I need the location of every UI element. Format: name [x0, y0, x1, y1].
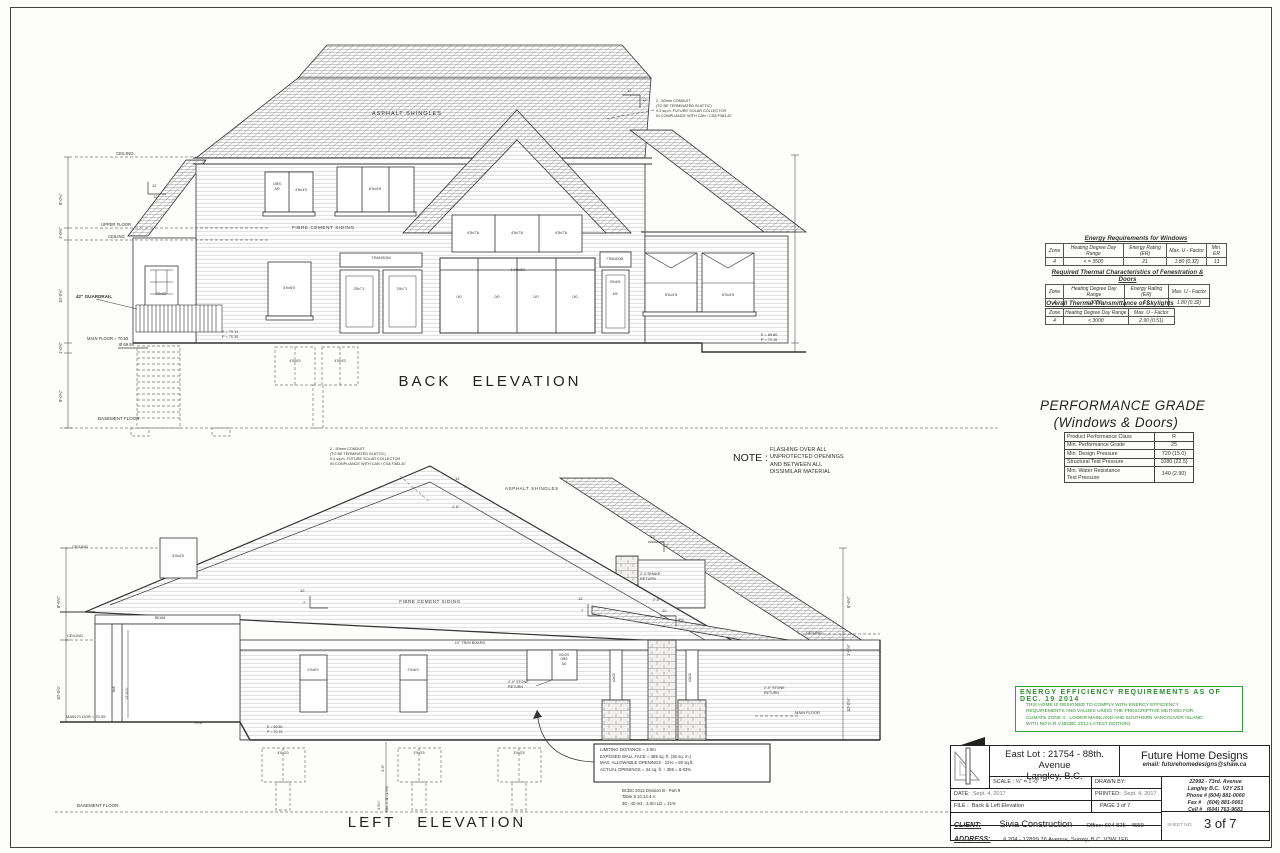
- column-header: Zone: [1046, 309, 1064, 317]
- address-label: ADDRESS:: [954, 836, 991, 843]
- energy-requirements-windows-table: Energy Requirements for Windows Zone Hea…: [1045, 235, 1227, 266]
- title-block: East Lot : 21754 - 88th. Avenue Langley,…: [950, 745, 1270, 841]
- table-title: Energy Requirements for Windows: [1045, 235, 1227, 242]
- drafting-triangle-logo: [951, 746, 987, 786]
- window-size-label: 4'5x7'6: [467, 230, 479, 235]
- table-cell: < = 3500: [1064, 258, 1124, 266]
- dim-label: 1'-6": [452, 505, 460, 510]
- energy-efficiency-title: ENERGY EFFICIENCY REQUIREMENTS AS OF DEC…: [1020, 689, 1238, 703]
- door-panel-label: 0/0: [457, 295, 462, 300]
- table-cell: 13: [1207, 258, 1227, 266]
- back-elevation-title: BACK ELEVATION: [399, 372, 582, 392]
- roof-pitch-label: 7: [464, 484, 466, 489]
- bcbc-code-note: BCBC 2012 Division B - Part 9 Table 9.10…: [622, 788, 680, 807]
- dim-label: 12'-6⅞": [125, 687, 130, 700]
- left-elevation-drawing: [55, 466, 950, 812]
- window-size-label: 3'9x3'5: [513, 751, 524, 756]
- table-cell: 4: [1046, 258, 1064, 266]
- roof-pitch-label: 12: [650, 534, 654, 539]
- column-header: Min. ER: [1207, 244, 1227, 258]
- window-size-label: 5'0x4'5: [665, 292, 677, 297]
- table-cell: < 3000: [1064, 317, 1129, 325]
- logo-cell: [951, 746, 989, 788]
- door-panel-label: 0/0: [495, 295, 500, 300]
- column-header: Zone: [1046, 285, 1064, 299]
- window-size-label: 3'0x2'0 OBS 3/0: [559, 653, 569, 666]
- window-size-label: 4'0x3'0: [277, 751, 288, 756]
- elevation-point: E = 69.80 P = 70.15: [267, 725, 283, 734]
- window-size-label: 3'0x5'0: [283, 285, 295, 290]
- table-cell: 25: [1155, 441, 1194, 450]
- column-header: Heating Degree Day Range: [1064, 244, 1124, 258]
- date-value: Sept. 4, 2017: [973, 791, 1006, 797]
- dim-label: 1'-0¾": [58, 342, 63, 354]
- project-address-cell: East Lot : 21754 - 88th. Avenue Langley,…: [989, 746, 1119, 776]
- file-value: Back & Left Elevation: [972, 803, 1024, 809]
- company-email: email: futurehomedesigns@shaw.ca: [1120, 762, 1269, 768]
- window-size-label: OBS 3/0: [273, 182, 281, 192]
- dim-label: Max. 4'-11" (1.5m): [385, 786, 389, 812]
- printed-label: PRINTED:: [1095, 791, 1121, 797]
- address-value: # 204 - 12899 76 Avenue, Surrey, B.C. V3…: [1003, 837, 1128, 843]
- dim-label: 8'-6¾": [56, 596, 61, 608]
- window-size-label: 2'0x6'0: [407, 668, 418, 673]
- roof-pitch-label: 12: [152, 183, 156, 188]
- dim-label: 1'-0¾": [58, 227, 63, 239]
- dim-label: 8'-0¼": [58, 193, 63, 205]
- left-elevation-title: LEFT ELEVATION: [348, 813, 527, 833]
- table-cell: 2.90 (0.51): [1128, 317, 1174, 325]
- table-cell: 1080 (22.5): [1155, 458, 1194, 467]
- table-cell: Min. Water Resistance Test Pressure: [1065, 467, 1155, 482]
- column-header: Heating Degree Day Range: [1064, 285, 1125, 299]
- scale-cell: SCALE : ¼" = 1'-0": [989, 776, 1091, 788]
- conduit-note: 2 - 50mm CONDUIT (TO BE TERMINATED IN AT…: [656, 99, 732, 119]
- project-line1: East Lot : 21754 - 88th. Avenue: [990, 749, 1119, 771]
- roof-pitch-label: 7: [581, 608, 583, 613]
- roof-pitch-label: 12: [578, 596, 582, 601]
- grade-elevation-mark: Ø 69.95: [119, 342, 134, 347]
- window-size-label: 4'5x7'6: [555, 230, 567, 235]
- window-size-label: 4'0x4'0: [172, 553, 184, 558]
- roof-pitch-label: 12: [153, 194, 157, 199]
- file-label: FILE :: [954, 803, 969, 809]
- column-header: Heating Degree Day Range: [1064, 309, 1129, 317]
- table-cell: 140 (2.90): [1155, 467, 1194, 482]
- door-size-label: 2'8x6'5: [156, 292, 167, 296]
- designer-address: 22992 - 73rd. Avenue Langley B.C. V2Y 2S…: [1162, 779, 1269, 813]
- ceiling-label: CEILING: [67, 633, 83, 638]
- door-panel-label: 0/0: [573, 295, 578, 300]
- trim-board-label: 10" TRIM BOARD: [455, 641, 485, 646]
- post-size-label: 8x8: [112, 687, 116, 692]
- sheet-number-cell: SHEET NO. 3 of 7: [1161, 811, 1269, 840]
- drawn-by-cell: DRAWN BY:: [1091, 776, 1161, 788]
- table-title: Overall Thermal Transmittance of Skyligh…: [1045, 300, 1175, 307]
- window-size-label: 3'9x3'5: [413, 751, 424, 756]
- table-title: Required Thermal Characteristics of Fene…: [1045, 269, 1210, 283]
- ceiling-label: CEILING: [72, 544, 88, 549]
- stone-return-label: 2'-0" STONE RETURN: [508, 680, 528, 689]
- energy-efficiency-note: ENERGY EFFICIENCY REQUIREMENTS AS OF DEC…: [1015, 686, 1243, 732]
- column-header: Max. U - Factor: [1168, 285, 1209, 299]
- dim-label: 8'-6¾": [846, 596, 851, 608]
- company-cell: Future Home Designs email: futurehomedes…: [1119, 746, 1269, 776]
- beam-label: BEAM: [155, 616, 165, 621]
- column-header: Max. U - Factor: [1167, 244, 1207, 258]
- ceiling-label: CEILING: [116, 151, 134, 157]
- column-header: Max. U - Factor: [1128, 309, 1174, 317]
- sheet-number-value: 3 of 7: [1204, 816, 1237, 831]
- main-floor-label: MAIN FLOOR = 70.55: [87, 336, 128, 341]
- window-size-label: 5'0x4'5: [722, 292, 734, 297]
- ceiling-label: CEILING: [806, 630, 822, 635]
- window-size-label: 8'0x4'6: [369, 186, 381, 191]
- table-cell: 720 (15.0): [1155, 450, 1194, 459]
- window-size-label: 4'5x7'6: [511, 230, 523, 235]
- column-header: Zone: [1046, 244, 1064, 258]
- client-cell: CLIENT: Sivia Construction Office: 604 8…: [951, 812, 1161, 825]
- dim-label: 1'-0⅝": [846, 644, 851, 656]
- spot-elevation-label: 70.47: [194, 721, 203, 726]
- roof-pitch-label: 7: [303, 600, 305, 605]
- column-header: Energy Rating (ER): [1123, 244, 1166, 258]
- column-header: Energy Rating (ER): [1124, 285, 1168, 299]
- printed-cell: PRINTED: Sept. 4, 2017: [1091, 788, 1161, 800]
- drawing-sheet: BACK ELEVATION ASPHALT SHINGLES FIBRE CE…: [0, 0, 1280, 853]
- dim-label: 2'-0": [653, 598, 660, 603]
- basement-floor-label: BASEMENT FLOOR: [77, 803, 118, 809]
- elevation-point-right: E = 69.80 P = 70.10: [761, 333, 777, 343]
- main-floor-label: MAIN FLOOR: [795, 710, 820, 715]
- window-size-label: 2'0x6'0: [307, 668, 318, 673]
- dim-label: 3'-0": [381, 765, 386, 772]
- limiting-distance-note: LIMITING DISTANCE = 3.0m EXPOSED WALL FA…: [600, 747, 694, 774]
- post-size-label: 10x10: [612, 673, 616, 682]
- date-label: DATE:: [954, 791, 970, 797]
- window-size-label: 4'6x4'0: [295, 188, 307, 193]
- stone-return-label: 2'-0" STONE RETURN: [764, 686, 784, 695]
- table-cell: Min. Performance Grade: [1065, 441, 1155, 450]
- upper-floor-label: UPPER FLOOR: [101, 222, 131, 227]
- printed-value: Sept. 4, 2017: [1124, 791, 1157, 797]
- roof-pitch-label: 12: [662, 608, 666, 613]
- dim-label: 4'-6¾": [377, 800, 381, 810]
- note-label: NOTE :: [733, 452, 768, 466]
- table-cell: Min. Design Pressure: [1065, 450, 1155, 459]
- elevation-point-left: E = 70.14 P = 70.30: [222, 330, 238, 340]
- table-cell: 4: [1046, 317, 1064, 325]
- window-size-label: 4'0x4'0: [334, 359, 345, 364]
- client-address-cell: ADDRESS: # 204 - 12899 76 Avenue, Surrey…: [951, 825, 1161, 840]
- performance-grade-title: PERFORMANCE GRADE (Windows & Doors): [1040, 398, 1192, 432]
- roof-pitch-label: 12: [642, 97, 646, 102]
- file-cell: FILE : Back & Left Elevation: [951, 800, 1091, 812]
- door-panel-label: 0/0: [534, 295, 539, 300]
- roof-pitch-label: 12: [627, 88, 631, 93]
- dim-label: 10'-0⅝": [846, 698, 851, 712]
- asphalt-shingles-label: ASPHALT SHINGLES: [505, 486, 559, 492]
- sheet-number-label: SHEET NO.: [1167, 823, 1193, 828]
- shake-return-label: 2'-0"SHAKE RETURN: [640, 572, 660, 582]
- note-body: FLASHING OVER ALL UNPROTECTED OPENINGS A…: [770, 447, 844, 476]
- performance-grade-title-line2: (Windows & Doors): [1040, 415, 1192, 432]
- post-size-label: 10x10: [688, 673, 692, 682]
- asphalt-shingles-label: ASPHALT SHINGLES: [372, 111, 442, 118]
- roof-pitch-label: 12: [300, 588, 304, 593]
- roof-pitch-label: 12: [455, 476, 459, 481]
- door-size-label: 3'0x6'5: [610, 280, 621, 285]
- siding-label: FIBRE CEMENT SIDING: [292, 225, 355, 231]
- siding-label: FIBRE CEMENT SIDING: [399, 599, 461, 605]
- page-cell: PAGE 3 of 7: [1091, 800, 1161, 812]
- transom-label: TRANSOM: [607, 257, 624, 261]
- conduit-note: 2 - 50mm CONDUIT (TO BE TERMINATED IN AT…: [330, 447, 406, 467]
- company-name: Future Home Designs: [1120, 750, 1269, 762]
- door-size-label: 2'8x7'1: [397, 287, 408, 291]
- main-floor-label: MAIN FLOOR = 70.55: [66, 714, 105, 719]
- performance-grade-title-line1: PERFORMANCE GRADE: [1040, 398, 1192, 415]
- table-cell: 1.80 (0.32): [1167, 258, 1207, 266]
- table-cell: Product Performance Class: [1065, 433, 1155, 442]
- door-size-label: 2'8x7'1: [354, 287, 365, 291]
- ceiling-label: CEILING: [108, 234, 125, 239]
- door-panel-label: 4/5: [613, 292, 618, 297]
- roof-pitch-label: 4½: [678, 617, 684, 622]
- skylights-table: Overall Thermal Transmittance of Skyligh…: [1045, 300, 1175, 325]
- table-cell: Structural Test Pressure: [1065, 458, 1155, 467]
- basement-floor-label: BASEMENT FLOOR: [98, 416, 139, 422]
- window-size-label: 4'0x4'0: [289, 359, 300, 364]
- designer-address-cell: 22992 - 73rd. Avenue Langley B.C. V2Y 2S…: [1161, 776, 1269, 811]
- dim-label: 10'-0⅝": [58, 289, 63, 303]
- guardrail-label: 42" GUARDRAIL: [76, 294, 112, 300]
- roof-pitch-label: 2: [666, 543, 668, 548]
- door-size-label: 14'0x8'0: [511, 267, 526, 272]
- dim-label: 9'-0¼": [58, 390, 63, 402]
- table-cell: 21: [1123, 258, 1166, 266]
- dim-label: 10'-0⅝": [56, 686, 61, 700]
- table-cell: R: [1155, 433, 1194, 442]
- transom-label: TRANSOM: [372, 256, 391, 261]
- energy-efficiency-body: THIS HOME IS DESIGNED TO COMPLY WITH ENE…: [1026, 703, 1238, 729]
- performance-grade-table: Product Performance ClassR Min. Performa…: [1064, 432, 1194, 483]
- date-cell: DATE: Sept. 4, 2017: [951, 788, 1091, 800]
